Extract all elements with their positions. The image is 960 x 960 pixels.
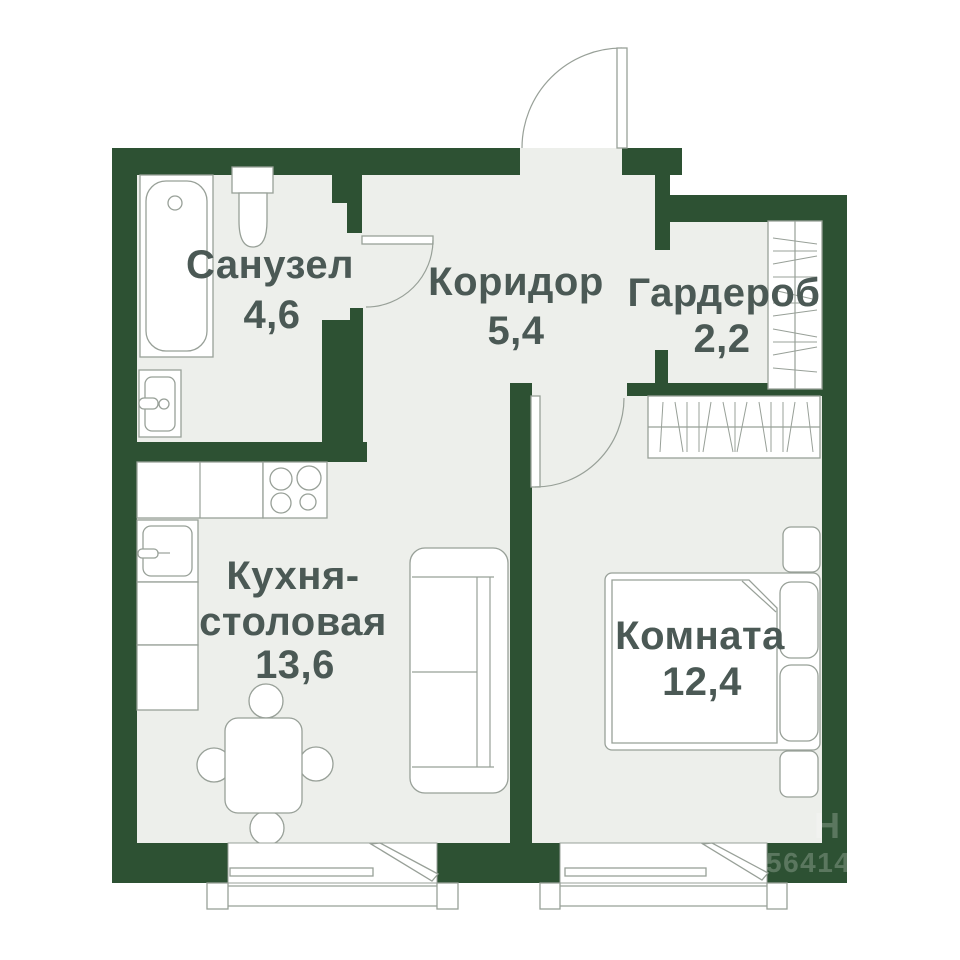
washbasin-icon (139, 370, 181, 437)
wall-right (822, 195, 847, 883)
nightstand-icon (780, 751, 818, 797)
kitchen-balcony-rail (207, 883, 458, 909)
room-label: Комната (615, 614, 785, 658)
wall-bottom-2 (437, 843, 560, 883)
wall-corridor-wardrobe-upper (655, 175, 670, 250)
room-balcony-rail (540, 883, 787, 909)
wall-kitchen-room (510, 383, 532, 843)
wardrobe-area: 2,2 (693, 317, 750, 361)
pillow-icon (780, 582, 818, 658)
wall-bathroom-right-c (350, 308, 363, 322)
corridor-label: Коридор (428, 260, 604, 304)
corridor-area: 5,4 (487, 309, 544, 353)
chair-icon (250, 811, 284, 845)
stove-icon (263, 462, 327, 518)
floor-plan: Санузел 4,6 Коридор 5,4 Гардероб 2,2 Кух… (0, 0, 960, 960)
bathroom-area: 4,6 (243, 293, 300, 337)
wall-bathroom-bottom (112, 442, 367, 462)
wall-wardrobe-top (670, 195, 847, 222)
wall-bathroom-right-a (332, 148, 362, 203)
room-wardrobe-icon (648, 396, 820, 458)
nightstand-icon (783, 527, 820, 572)
chair-icon (299, 747, 333, 781)
floor-plan-page: Санузел 4,6 Коридор 5,4 Гардероб 2,2 Кух… (0, 0, 960, 960)
kitchen-cabinet-1 (137, 582, 198, 645)
watermark-line2: 56414 (766, 847, 851, 878)
kitchen-label-line1: Кухня- (226, 554, 359, 598)
wall-top-left (112, 148, 520, 175)
wall-bathroom-right-b (347, 203, 362, 233)
kitchen-sink-icon (137, 520, 198, 582)
watermark-line1: Н (814, 805, 840, 846)
kitchen-counter (137, 462, 263, 518)
wall-bathroom-right-d (322, 320, 363, 452)
room-window (560, 843, 768, 883)
room-area: 12,4 (662, 660, 742, 704)
entry-door-leaf (617, 48, 627, 148)
chair-icon (249, 684, 283, 718)
wall-top-right (622, 148, 682, 175)
sofa-icon (410, 548, 508, 793)
kitchen-label-line2: столовая (199, 600, 387, 644)
entry-door (522, 48, 627, 148)
wall-bottom-1 (112, 843, 228, 883)
room-door-leaf (531, 396, 540, 487)
kitchen-cabinet-2 (137, 645, 198, 710)
pillow-icon (780, 665, 818, 741)
dining-table-icon (225, 718, 302, 813)
kitchen-window (228, 843, 438, 883)
wardrobe-label: Гардероб (627, 271, 820, 315)
wall-left (112, 148, 137, 883)
entry-threshold (520, 148, 622, 175)
bathroom-label: Санузел (186, 243, 354, 287)
kitchen-area: 13,6 (255, 643, 335, 687)
bathroom-door-leaf (362, 236, 433, 244)
